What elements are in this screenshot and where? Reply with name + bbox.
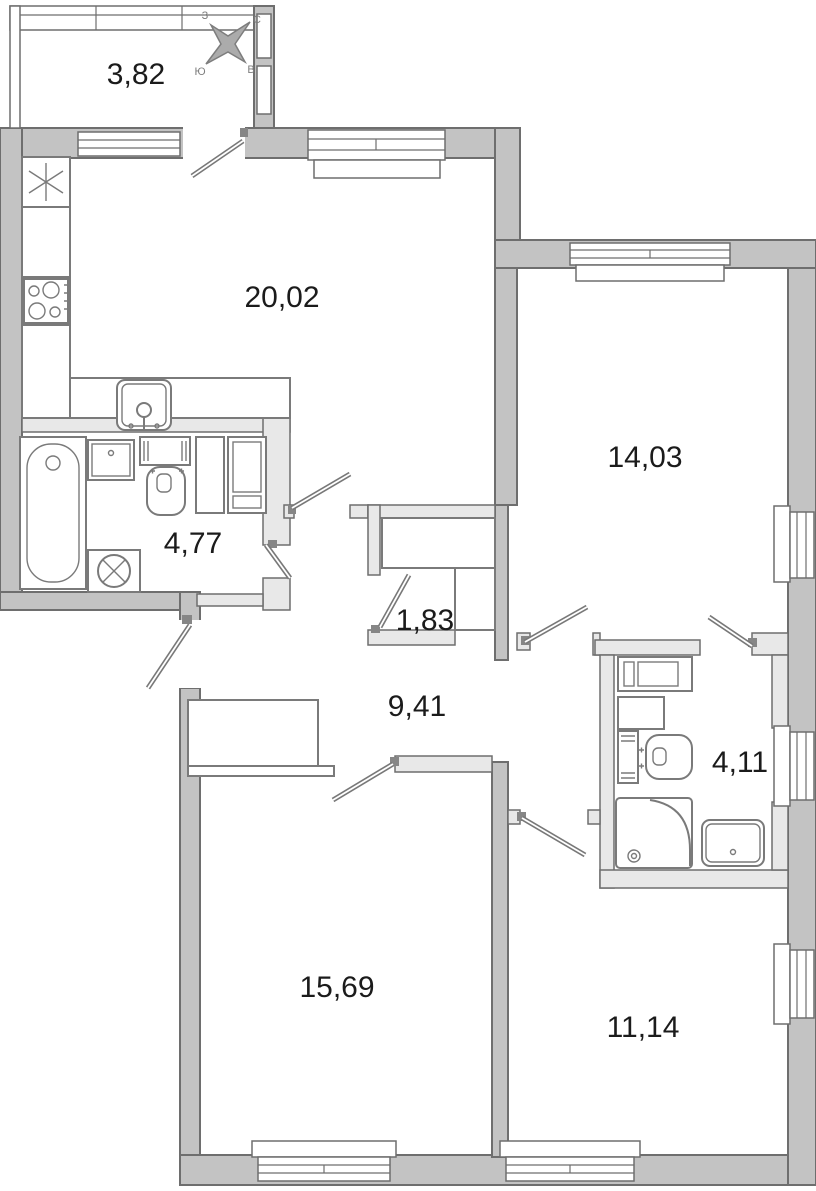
room-label-bedroom-main: 14,03 — [607, 441, 682, 474]
window-right-bathroom — [774, 726, 814, 806]
partition-wall — [600, 655, 614, 888]
partition-wall — [395, 756, 492, 772]
kitchen-counter — [70, 378, 290, 418]
partition-wall — [368, 505, 495, 518]
room-label-bathroom-ensuite: 4,11 — [712, 746, 768, 779]
room-label-balcony: 3,82 — [107, 58, 165, 91]
hall-wardrobe-icon — [188, 700, 334, 776]
floor-plan-page: С В Ю З 3,82 20,02 14,03 4,77 1,83 9,41 … — [0, 0, 816, 1191]
compass-north-label: С — [253, 14, 261, 26]
entry-door-opening — [178, 620, 202, 688]
wall — [495, 505, 508, 660]
partition-wall — [350, 505, 368, 518]
kitchen-sink-icon — [117, 380, 171, 430]
partition-wall — [263, 578, 290, 610]
ensuite-toilet-icon — [618, 731, 692, 783]
room-label-hallway: 9,41 — [388, 690, 446, 723]
window-kitchen-left — [78, 132, 180, 156]
window-right-bedroom-main — [774, 506, 814, 582]
wall — [788, 240, 816, 1185]
ensuite-washing-machine-icon — [618, 657, 692, 691]
window-kitchen-main — [308, 130, 445, 178]
bedroom-right-door — [517, 812, 585, 855]
ensuite-sink-icon — [702, 820, 764, 866]
washing-machine-icon — [88, 550, 140, 592]
ensuite-cabinet-icon — [618, 697, 664, 729]
kitchen-door — [288, 474, 350, 514]
window-bottom-bedroom-left — [252, 1141, 396, 1181]
shower-icon — [616, 798, 692, 868]
balcony-glazing — [257, 66, 271, 114]
partition-wall — [368, 505, 380, 575]
partition-wall — [595, 640, 700, 655]
toilet-icon — [140, 437, 190, 515]
window-bedroom-main — [570, 243, 730, 281]
wall — [0, 128, 22, 610]
partition-wall — [772, 802, 788, 870]
room-label-closet: 1,83 — [396, 604, 454, 637]
bathroom-sink-icon — [88, 440, 134, 480]
ensuite-bathroom-door — [709, 617, 757, 647]
room-label-bathroom-main: 4,77 — [164, 527, 222, 560]
bathroom-cabinet-icon — [196, 437, 266, 513]
floor-plan: С В Ю З 3,82 20,02 14,03 4,77 1,83 9,41 … — [0, 0, 816, 1191]
partition-wall — [752, 633, 788, 655]
room-label-bedroom-right: 11,14 — [607, 1011, 680, 1044]
compass-east-label: В — [247, 64, 254, 76]
door-jamb — [588, 810, 600, 824]
outer-walls — [0, 128, 816, 1185]
compass-south-label: Ю — [194, 66, 205, 78]
interior-walls — [492, 268, 517, 1157]
compass-west-label: З — [202, 10, 209, 22]
window-right-bedroom-right — [774, 944, 814, 1024]
window-bottom-bedroom-right — [500, 1141, 640, 1181]
balcony-rail — [10, 6, 20, 128]
bathtub-icon — [20, 437, 86, 589]
bedroom-left-door — [333, 757, 399, 800]
wall — [492, 762, 508, 1157]
partition-wall — [600, 870, 788, 888]
balcony-rail — [10, 6, 272, 30]
room-label-bedroom-left: 15,69 — [299, 971, 374, 1004]
room-label-kitchen-living: 20,02 — [244, 281, 319, 314]
partition-wall — [772, 655, 788, 728]
partition-wall — [197, 594, 263, 606]
stove-icon — [24, 279, 68, 323]
partition-wall — [263, 418, 290, 545]
wall — [495, 268, 517, 505]
bedroom-main-door — [521, 607, 587, 645]
wall — [0, 592, 197, 610]
